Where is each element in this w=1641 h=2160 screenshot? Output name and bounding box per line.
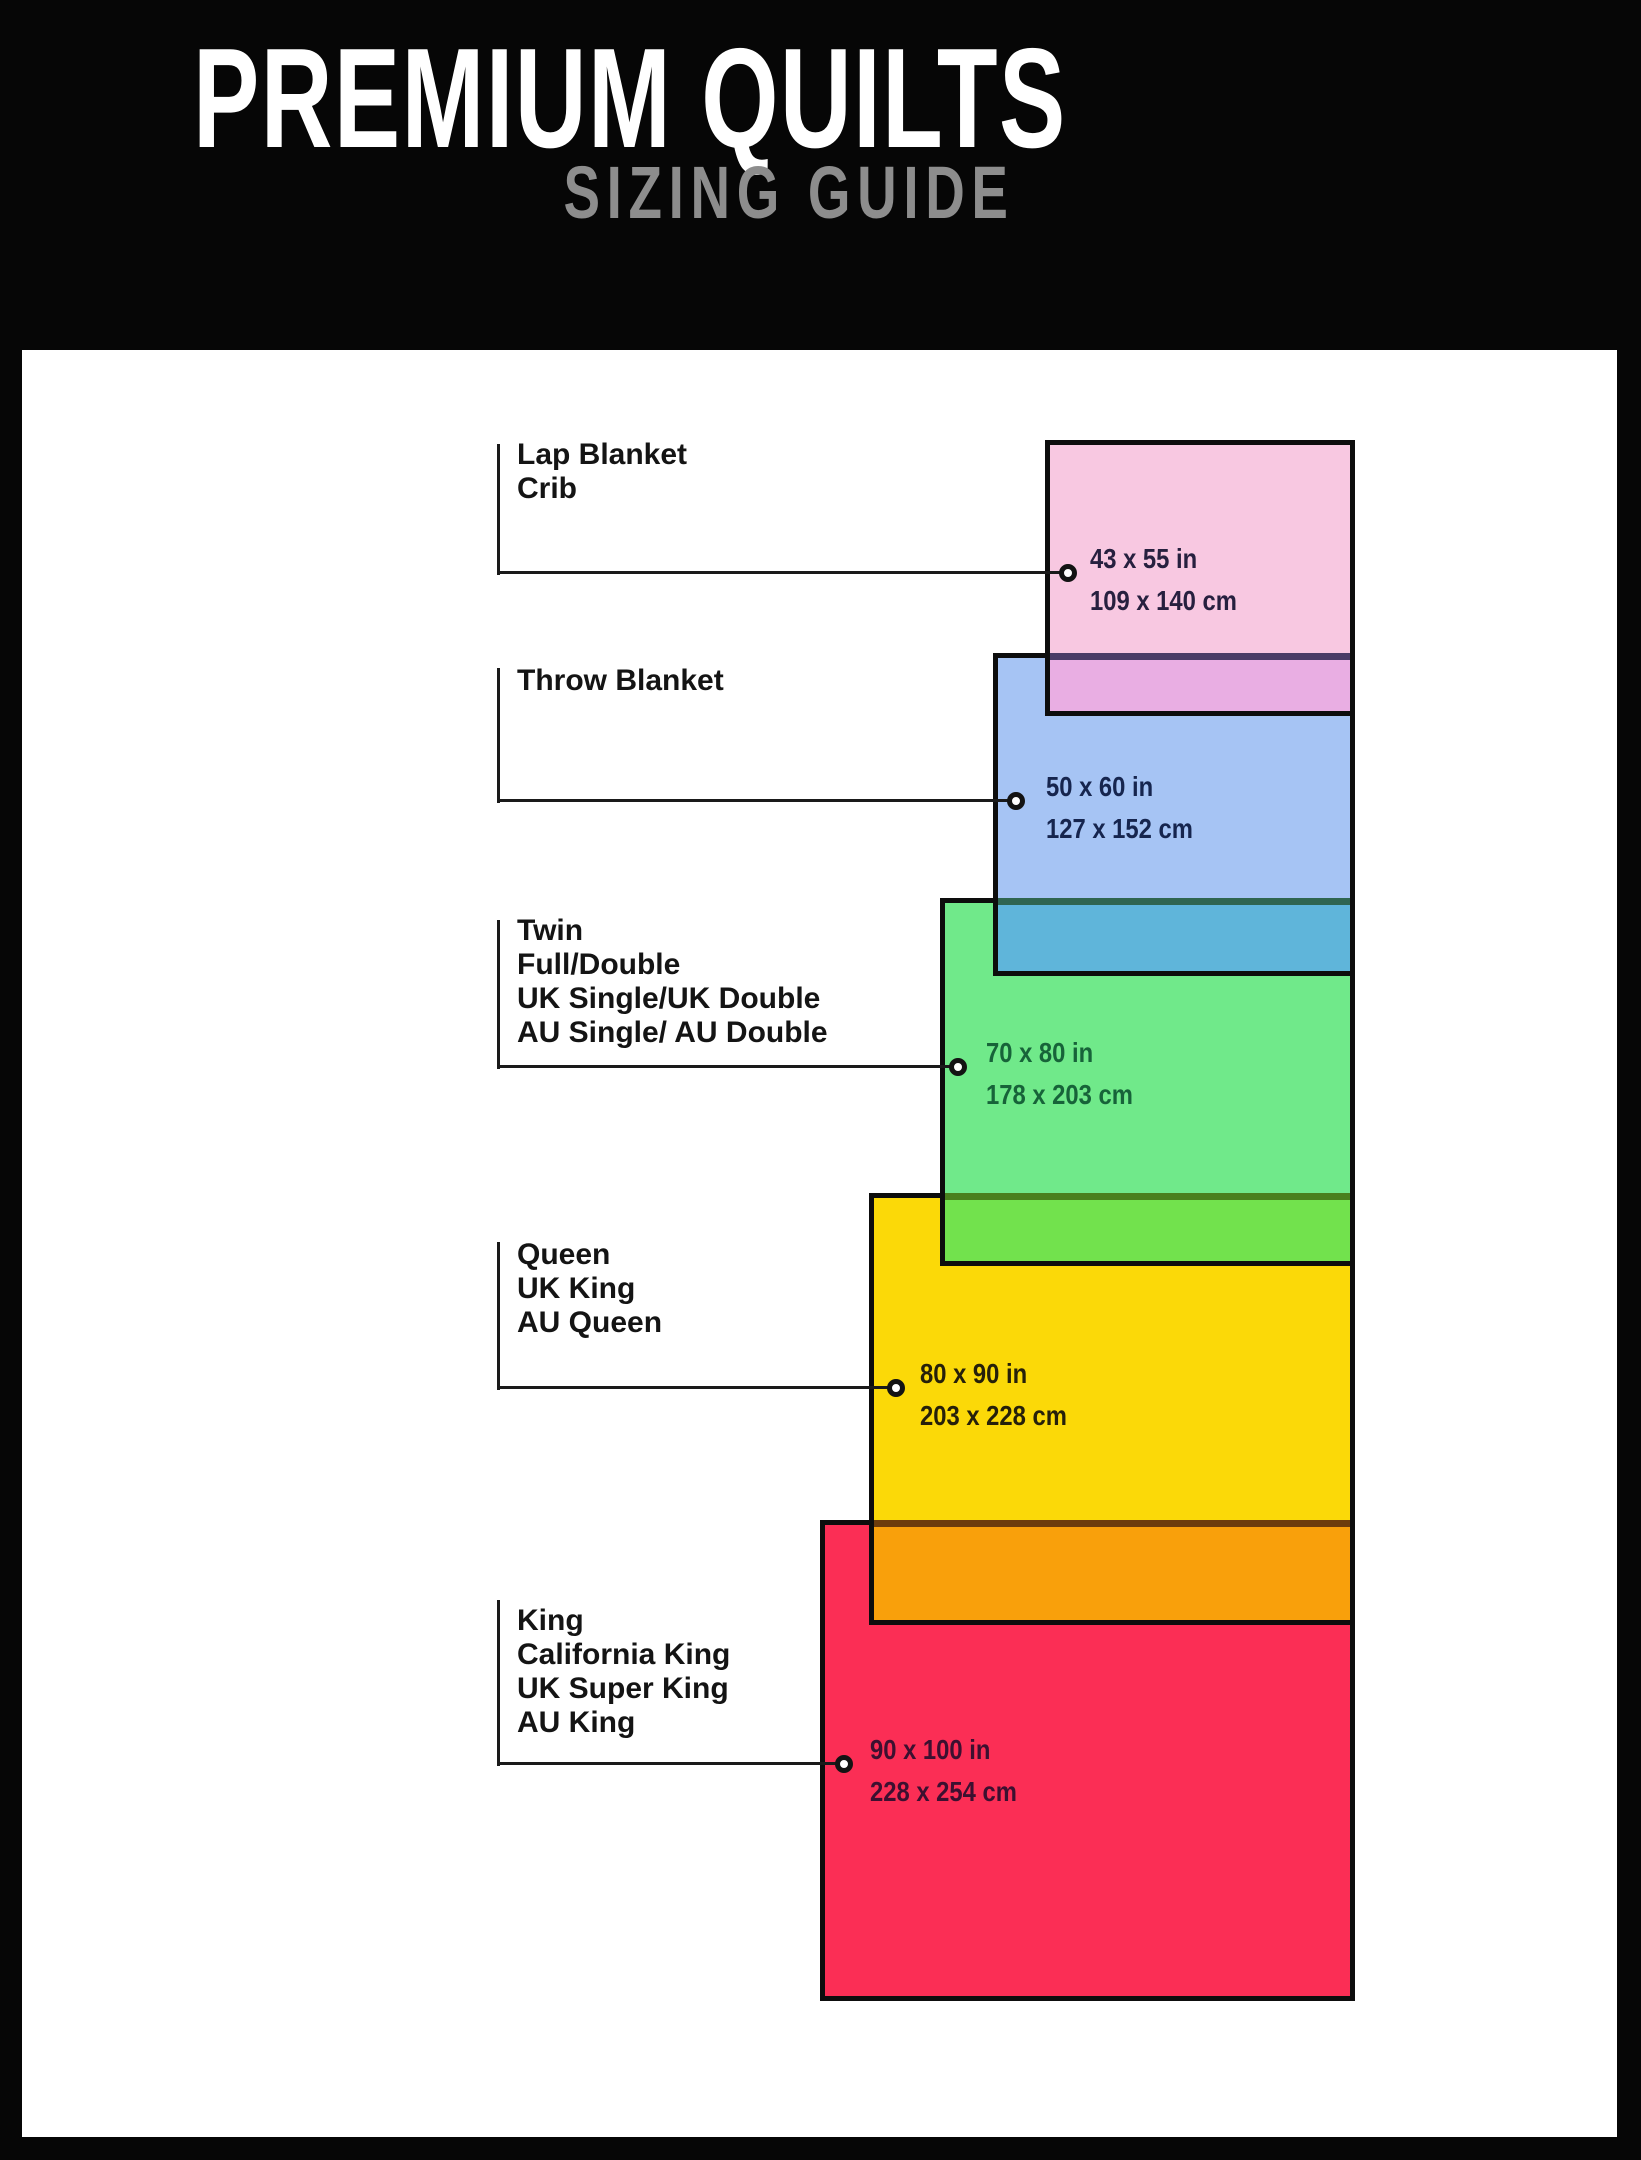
dims-throw: 50 x 60 in127 x 152 cm xyxy=(1046,766,1193,850)
dims-twin-full: 70 x 80 in178 x 203 cm xyxy=(986,1032,1133,1116)
overlap-queen-over-king xyxy=(874,1527,1350,1620)
overlap-lap-crib-over-throw xyxy=(1050,660,1350,711)
leader-vline-throw xyxy=(497,668,500,803)
dims-king: 90 x 100 in228 x 254 cm xyxy=(870,1729,1017,1813)
dims-inches: 50 x 60 in xyxy=(1046,766,1193,808)
dims-inches: 43 x 55 in xyxy=(1090,538,1237,580)
label-line: UK Single/UK Double xyxy=(517,982,828,1016)
label-twin-full: TwinFull/DoubleUK Single/UK DoubleAU Sin… xyxy=(517,914,828,1050)
dims-lap-crib: 43 x 55 in109 x 140 cm xyxy=(1090,538,1237,622)
label-line: UK Super King xyxy=(517,1672,730,1706)
label-line: AU King xyxy=(517,1706,730,1740)
leader-hline-king xyxy=(497,1762,844,1765)
covered-border-queen-over-king xyxy=(874,1520,1350,1527)
label-lap-crib: Lap BlanketCrib xyxy=(517,438,687,506)
leader-dot-twin-full xyxy=(949,1058,967,1076)
leader-dot-lap-crib xyxy=(1059,564,1077,582)
leader-vline-queen xyxy=(497,1242,500,1390)
infographic-page: PREMIUM QUILTS SIZING GUIDE Lap BlanketC… xyxy=(0,0,1641,2160)
leader-hline-throw xyxy=(497,799,1016,802)
covered-border-twin-full-over-queen xyxy=(945,1193,1350,1200)
label-line: California King xyxy=(517,1638,730,1672)
dims-inches: 90 x 100 in xyxy=(870,1729,1017,1771)
label-line: Twin xyxy=(517,914,828,948)
dims-queen: 80 x 90 in203 x 228 cm xyxy=(920,1353,1067,1437)
leader-vline-king xyxy=(497,1600,500,1766)
label-line: Lap Blanket xyxy=(517,438,687,472)
dims-cm: 228 x 254 cm xyxy=(870,1771,1017,1813)
overlap-twin-full-over-queen xyxy=(945,1200,1350,1261)
leader-dot-king xyxy=(835,1755,853,1773)
label-throw: Throw Blanket xyxy=(517,664,724,698)
dims-inches: 70 x 80 in xyxy=(986,1032,1133,1074)
leader-hline-lap-crib xyxy=(497,571,1068,574)
label-line: Throw Blanket xyxy=(517,664,724,698)
dims-inches: 80 x 90 in xyxy=(920,1353,1067,1395)
covered-border-throw-over-twin-full xyxy=(998,898,1350,905)
leader-hline-twin-full xyxy=(497,1065,958,1068)
overlap-throw-over-twin-full xyxy=(998,905,1350,971)
dims-cm: 203 x 228 cm xyxy=(920,1395,1067,1437)
leader-dot-throw xyxy=(1007,792,1025,810)
label-queen: QueenUK KingAU Queen xyxy=(517,1238,662,1340)
dims-cm: 109 x 140 cm xyxy=(1090,580,1237,622)
dims-cm: 127 x 152 cm xyxy=(1046,808,1193,850)
label-line: AU Queen xyxy=(517,1306,662,1340)
label-line: AU Single/ AU Double xyxy=(517,1016,828,1050)
leader-vline-lap-crib xyxy=(497,444,500,575)
leader-hline-queen xyxy=(497,1386,896,1389)
label-line: UK King xyxy=(517,1272,662,1306)
label-king: KingCalifornia KingUK Super KingAU King xyxy=(517,1604,730,1740)
label-line: Queen xyxy=(517,1238,662,1272)
dims-cm: 178 x 203 cm xyxy=(986,1074,1133,1116)
label-line: Crib xyxy=(517,472,687,506)
label-line: King xyxy=(517,1604,730,1638)
page-title: PREMIUM QUILTS xyxy=(193,28,1067,170)
leader-vline-twin-full xyxy=(497,920,500,1069)
covered-border-lap-crib-over-throw xyxy=(1050,653,1350,660)
leader-dot-queen xyxy=(887,1379,905,1397)
label-line: Full/Double xyxy=(517,948,828,982)
page-subtitle: SIZING GUIDE xyxy=(564,150,1015,235)
